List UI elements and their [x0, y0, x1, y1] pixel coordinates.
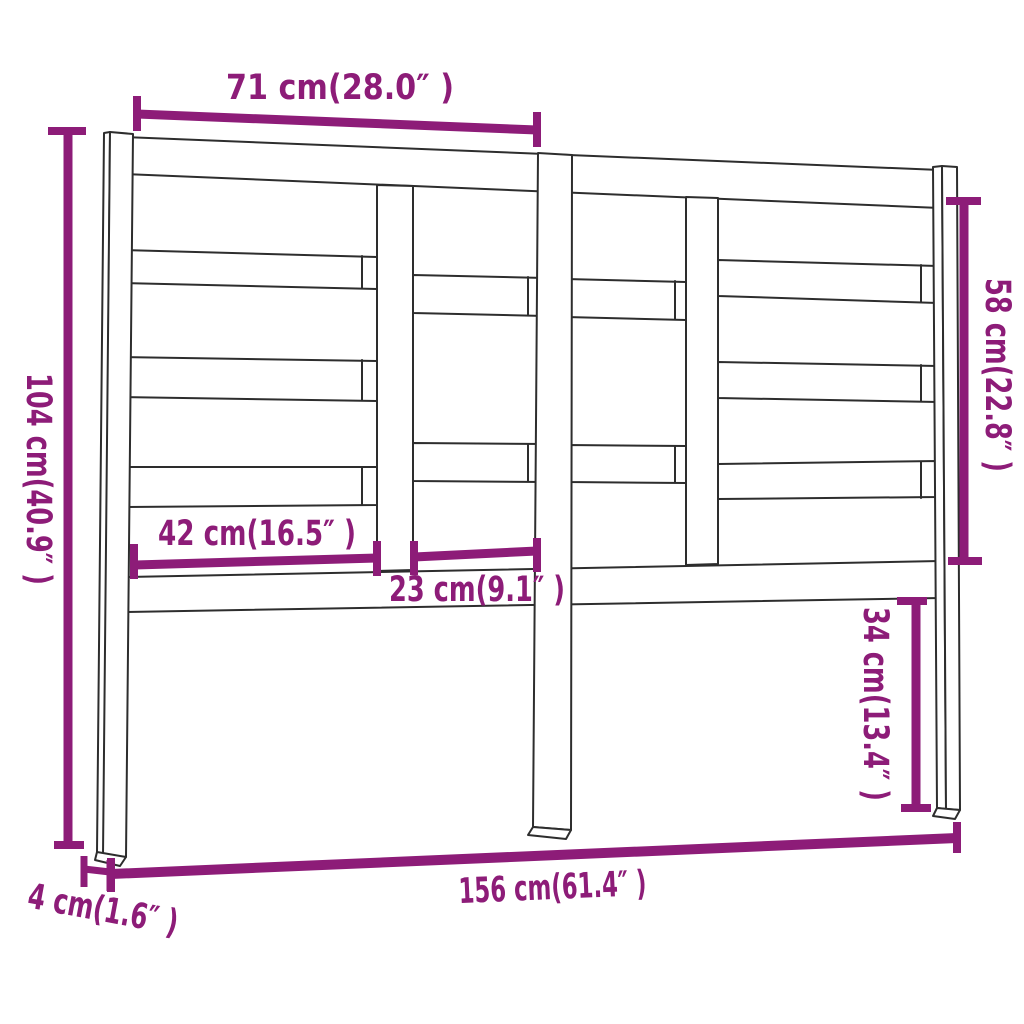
dim-label-total-height: 104 cm(40.9″ ) [18, 373, 58, 585]
dim-label-center-panel-width: 23 cm(9.1″ ) [389, 570, 565, 610]
right-panel-slat [718, 362, 938, 402]
headboard-structure [95, 132, 960, 866]
right-panel-slat [718, 260, 938, 303]
mid-left-slat [413, 275, 545, 316]
top-rail [125, 137, 940, 208]
left-panel-slat [123, 357, 377, 401]
dim-label-total-width: 156 cm(61.4″ ) [458, 864, 648, 912]
dim-label-left-panel-width: 42 cm(16.5″ ) [158, 514, 356, 554]
dim-label-leg-below-height: 34 cm(13.4″ ) [855, 607, 895, 801]
mid-left-slat [413, 443, 545, 482]
mid-right-slat [566, 279, 686, 320]
left-panel-slat [123, 250, 377, 289]
inner-left-post [377, 185, 413, 571]
left-panel-slat [123, 467, 377, 507]
headboard-dimension-diagram: 71 cm(28.0″ ) 104 cm(40.9″ ) 58 cm(22.8″… [0, 0, 1024, 1024]
right-leg-front-face [942, 166, 960, 810]
dim-label-depth: 4 cm(1.6″ ) [25, 877, 182, 944]
dim-label-top-width: 71 cm(28.0″ ) [226, 68, 454, 108]
dim-line-leg-below-height [897, 601, 931, 808]
center-post-bottom-face [528, 827, 571, 839]
right-panel-slat [718, 461, 938, 499]
inner-right-post [686, 197, 718, 565]
right-leg-bottom-face [933, 808, 960, 819]
center-post [533, 153, 572, 830]
dim-label-slat-area-height: 58 cm(22.8″ ) [977, 278, 1017, 472]
diagram-canvas: 71 cm(28.0″ ) 104 cm(40.9″ ) 58 cm(22.8″… [0, 0, 1024, 1024]
mid-right-slat [566, 445, 686, 483]
